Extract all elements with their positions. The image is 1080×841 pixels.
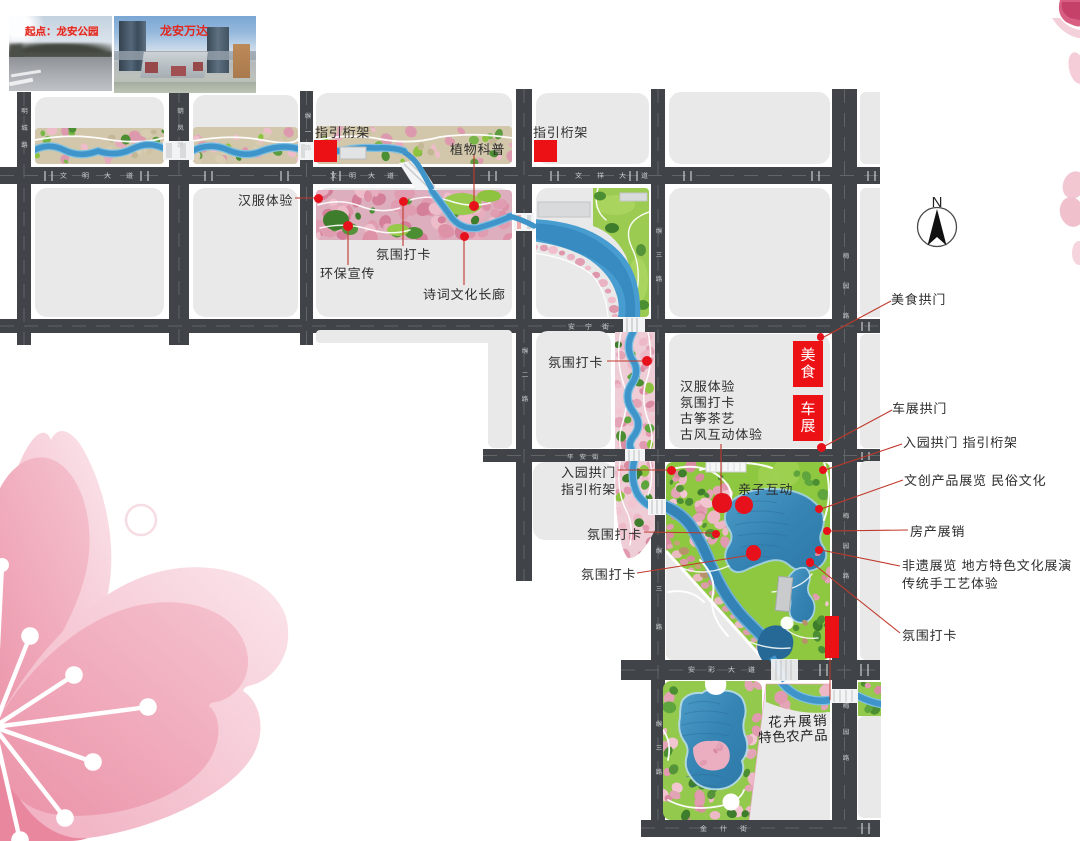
svg-text:N: N xyxy=(932,194,943,211)
